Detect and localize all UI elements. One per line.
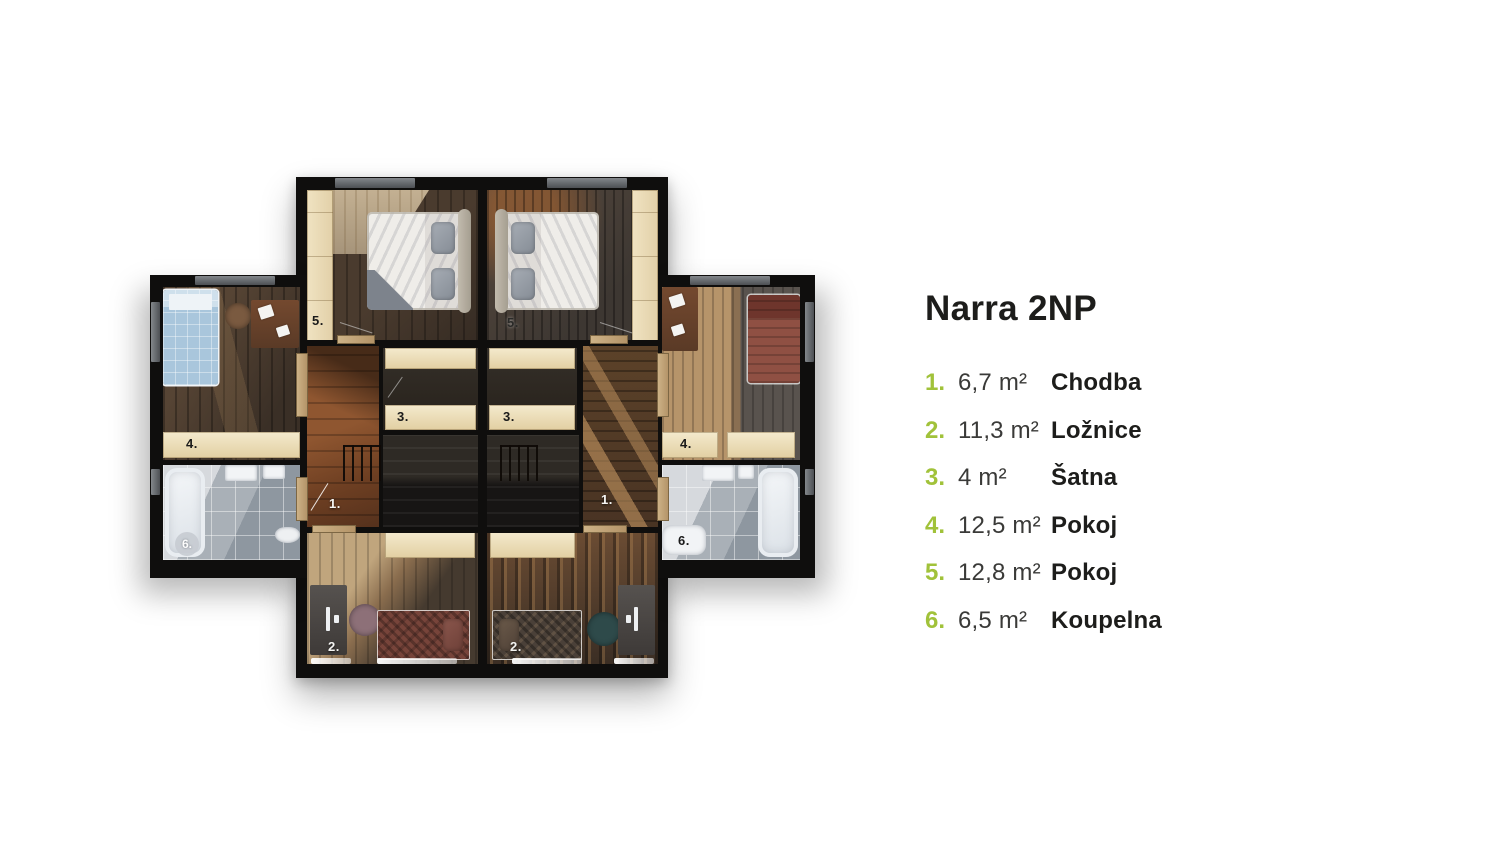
closet-shelf	[489, 348, 575, 369]
room-label-3: 3.	[503, 410, 515, 423]
sink	[738, 465, 754, 479]
bathroom-left: 6.	[163, 465, 300, 560]
desk	[251, 300, 299, 348]
single-bed	[377, 610, 470, 660]
bed-pillow	[169, 294, 212, 310]
room-5-left: 5.	[307, 190, 478, 345]
shelf-cabinet	[727, 432, 795, 458]
sink	[263, 465, 285, 479]
stair-railing	[343, 445, 381, 481]
room-label-4: 4.	[680, 437, 692, 450]
page-title: Narra 2NP	[925, 290, 1162, 329]
monitor	[326, 607, 330, 631]
legend-room-name: Chodba	[1051, 369, 1142, 397]
room-label-2: 2.	[510, 640, 522, 653]
single-bed-red	[748, 295, 800, 383]
bed-blanket	[367, 270, 413, 310]
door	[583, 525, 627, 533]
bed-pillow	[511, 222, 535, 254]
closet-shelf	[385, 348, 476, 369]
bed-headboard	[495, 209, 508, 313]
window	[690, 276, 770, 285]
bed-pillow	[431, 268, 455, 300]
legend-number: 4.	[925, 512, 958, 540]
wall	[487, 430, 579, 435]
bed-pillow	[431, 222, 455, 254]
window	[335, 178, 415, 188]
legend-row-chodba: 1. 6,7 m² Chodba	[925, 360, 1162, 408]
legend-room-name: Ložnice	[1051, 417, 1142, 445]
desk	[662, 287, 698, 351]
window-sill	[311, 658, 351, 664]
toilet	[275, 527, 300, 543]
paper	[671, 323, 686, 336]
door	[296, 477, 308, 521]
hallway-right: 1.	[583, 345, 658, 532]
room-4-left: 4.	[163, 287, 300, 460]
door	[312, 525, 356, 533]
bed-pillow	[511, 268, 535, 300]
double-bed	[499, 212, 599, 310]
window-sill	[512, 658, 582, 664]
double-bed	[367, 212, 467, 310]
legend-row-satna: 3. 4 m² Šatna	[925, 455, 1162, 503]
closet-right: 3.	[487, 348, 577, 432]
single-bed-blue	[163, 290, 218, 385]
window-sill	[377, 658, 457, 664]
legend-number: 2.	[925, 417, 958, 445]
legend-area: 6,5 m²	[958, 607, 1051, 635]
legend-room-name: Šatna	[1051, 464, 1117, 492]
legend-area: 4 m²	[958, 464, 1051, 492]
legend-number: 6.	[925, 607, 958, 635]
paper	[668, 293, 685, 309]
legend-room-name: Pokoj	[1051, 512, 1117, 540]
shelf-cabinet	[490, 532, 575, 558]
bed-pillow	[443, 619, 463, 651]
chair	[225, 303, 251, 329]
legend-row-pokoj-5: 5. 12,8 m² Pokoj	[925, 550, 1162, 598]
room-label-6-text: 6.	[182, 537, 192, 551]
wardrobe	[632, 190, 658, 345]
wall	[307, 340, 478, 346]
desk-item	[626, 615, 631, 623]
desk-item	[334, 615, 339, 623]
paper	[276, 324, 291, 337]
room-label-3: 3.	[397, 410, 409, 423]
paper	[257, 304, 274, 320]
window	[151, 469, 160, 495]
wall	[487, 340, 658, 346]
bathtub	[758, 468, 798, 557]
legend-number: 5.	[925, 559, 958, 587]
room-5-right: 5.	[487, 190, 658, 345]
legend-number: 1.	[925, 369, 958, 397]
door	[590, 335, 628, 344]
legend-area: 6,7 m²	[958, 369, 1051, 397]
room-label-2: 2.	[328, 640, 340, 653]
page: 5. 5. 3. 3. 1. 1.	[0, 0, 1500, 844]
window	[195, 276, 275, 285]
staircase-left	[383, 435, 478, 527]
window	[805, 302, 814, 362]
shelf-cabinet	[163, 432, 300, 458]
wall	[383, 430, 478, 435]
legend-row-koupelna: 6. 6,5 m² Koupelna	[925, 597, 1162, 645]
room-label-4: 4.	[186, 437, 198, 450]
legend-row-pokoj-4: 4. 12,5 m² Pokoj	[925, 502, 1162, 550]
stair-railing	[500, 445, 538, 481]
window-sill	[614, 658, 654, 664]
room-4-right: 4.	[662, 287, 800, 460]
monitor	[634, 607, 638, 631]
wall	[579, 345, 583, 532]
bed-headboard	[458, 209, 471, 313]
legend-area: 12,8 m²	[958, 559, 1051, 587]
closet-shelf	[489, 405, 575, 430]
legend-number: 3.	[925, 464, 958, 492]
sink	[702, 465, 734, 481]
shelf-cabinet	[385, 532, 475, 558]
wall	[379, 345, 383, 532]
room-label-5: 5.	[312, 314, 324, 327]
wall	[487, 527, 658, 533]
legend-area: 11,3 m²	[958, 417, 1051, 445]
window	[151, 302, 160, 362]
hallway-left: 1.	[307, 345, 379, 532]
room-label-5: 5.	[507, 316, 519, 329]
room-label-6: 6.	[175, 532, 199, 556]
door	[296, 353, 308, 417]
door	[337, 335, 375, 344]
window	[547, 178, 627, 188]
bathroom-right: 6.	[662, 465, 800, 560]
door	[657, 477, 669, 521]
legend-area: 12,5 m²	[958, 512, 1051, 540]
door	[657, 353, 669, 417]
legend-panel: Narra 2NP 1. 6,7 m² Chodba 2. 11,3 m² Lo…	[925, 290, 1162, 645]
sink	[225, 465, 257, 481]
room-2-right: 2.	[487, 532, 658, 664]
room-label-1: 1.	[601, 493, 613, 506]
window	[805, 469, 814, 495]
room-2-left: 2.	[307, 532, 478, 664]
floor-plan: 5. 5. 3. 3. 1. 1.	[150, 177, 815, 678]
room-label-6: 6.	[678, 534, 690, 547]
single-bed	[492, 610, 582, 660]
legend-room-name: Koupelna	[1051, 607, 1162, 635]
room-label-1: 1.	[329, 497, 341, 510]
legend-row-loznice: 2. 11,3 m² Ložnice	[925, 407, 1162, 455]
legend-room-name: Pokoj	[1051, 559, 1117, 587]
desk	[618, 585, 655, 655]
chair	[587, 612, 621, 646]
closet-left: 3.	[383, 348, 478, 432]
